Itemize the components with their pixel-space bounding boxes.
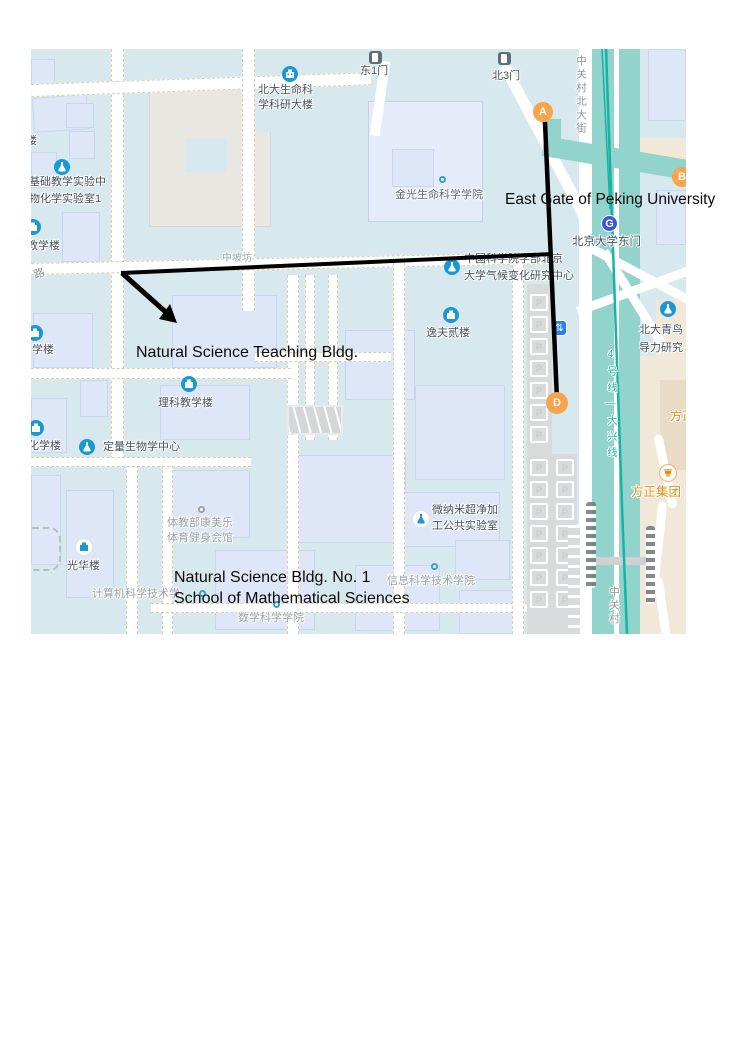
parking-cell: P [530, 547, 548, 564]
food-poi-icon[interactable] [660, 465, 676, 481]
parking-cell: P [530, 591, 548, 608]
parking-cell: P [530, 382, 548, 399]
building [66, 103, 94, 128]
parking-cell: P [530, 316, 548, 333]
poi-math: 数学科学学院 [238, 611, 304, 626]
poi-jiaoxuelou: 教学楼 [31, 239, 60, 254]
parking-cell: P [556, 481, 574, 498]
building [392, 149, 434, 187]
parking-cell: P [530, 525, 548, 542]
parking-cell: P [530, 404, 548, 421]
street-covered-label: 中坡坊 [222, 251, 252, 266]
parking-cell: P [556, 503, 574, 520]
parking-cell: P [530, 481, 548, 498]
marker-exit-a[interactable]: A [533, 102, 553, 122]
parking-ticks [568, 525, 580, 634]
building-poi-icon[interactable] [282, 66, 298, 82]
building-poi-icon[interactable] [76, 539, 92, 555]
parking-lot-hatched [287, 405, 343, 435]
poi-founder-group: 方正集团 [631, 485, 681, 500]
road [111, 49, 124, 459]
poi-lou-partial: 楼 [31, 134, 37, 149]
poi-qingniao-line1: 北大青鸟 [639, 323, 683, 338]
flask-poi-icon[interactable] [79, 439, 95, 455]
road [31, 457, 251, 467]
parking-cell: P [530, 569, 548, 586]
parking-cell: P [530, 294, 548, 311]
poi-micro-nano-line2: 工公共实验室 [432, 519, 498, 534]
poi-jinguang: 金光生命科学学院 [395, 188, 483, 203]
poi-info: 信息科学技术学院 [387, 574, 475, 589]
metro-logo-icon[interactable]: G [601, 215, 618, 232]
road [31, 368, 291, 379]
parking-cell: P [530, 426, 548, 443]
poi-founder-partial: 方正 [670, 409, 686, 424]
building [31, 59, 55, 85]
building-poi-icon[interactable] [181, 376, 197, 392]
poi-basic-lab-line1: 基础教学实验中 [31, 175, 106, 190]
poi-dot-icon[interactable] [198, 506, 205, 513]
metro-station-label: 北京大学东门 [572, 235, 641, 250]
subway-line4-label: 4号线—大兴线 [603, 349, 618, 463]
poi-yifu: 逸夫贰楼 [426, 326, 470, 341]
parking-cell: P [556, 459, 574, 476]
parking-cell: P [530, 338, 548, 355]
poi-qingniao-line2: 导力研究 [639, 341, 683, 356]
flask-poi-icon[interactable] [413, 511, 429, 527]
building [69, 131, 95, 159]
building [62, 212, 100, 262]
marker-exit-d[interactable]: D [546, 392, 568, 414]
poi-gym-line1: 体教部康美乐 [167, 516, 233, 531]
marker-exit-b[interactable]: B [672, 167, 686, 187]
screenshot-page: P P P P P P P P P P P P P P P P P P P P … [0, 0, 745, 1053]
poi-dot-icon[interactable] [431, 563, 438, 570]
gray-road-band [596, 557, 648, 565]
street-zgc-north: 中关村北大街 [573, 55, 588, 136]
poi-micro-nano-line1: 微纳米超净加 [432, 503, 498, 518]
building [160, 385, 250, 440]
road [512, 255, 524, 634]
poi-like-teaching: 理科教学楼 [158, 396, 213, 411]
poi-huaxuelou: 化学楼 [31, 439, 61, 454]
poi-gym-line2: 体育健身会馆 [167, 531, 233, 546]
poi-guanghua: 光华楼 [67, 559, 100, 574]
poi-basic-lab-line2: 物化学实验室1 [31, 192, 101, 207]
teal-road-stub [545, 119, 561, 149]
parking-cell: P [530, 503, 548, 520]
poi-cs: 计算机科学技术学 [92, 587, 180, 602]
footbridge-zebra [586, 502, 596, 588]
annotation-bldg-no1: Natural Science Bldg. No. 1 [174, 569, 371, 587]
poi-quant-bio: 定量生物学中心 [103, 440, 180, 455]
building [415, 385, 505, 480]
street-zgc-south: 中关村 [606, 586, 621, 627]
gate-door-icon[interactable] [498, 52, 511, 65]
building [648, 49, 686, 121]
building-poi-icon[interactable] [31, 219, 41, 235]
annotation-east-gate: East Gate of Peking University [505, 191, 715, 209]
annotation-math-school: School of Mathematical Sciences [174, 590, 410, 608]
road [126, 460, 138, 634]
gray-building-courtyard [185, 139, 227, 172]
annotation-teaching-bldg: Natural Science Teaching Bldg. [136, 344, 358, 362]
building [80, 380, 108, 417]
footbridge-zebra [646, 526, 655, 604]
poi-xuelou: 学楼 [32, 343, 54, 358]
metro-entrance-icon[interactable]: ⇅ [552, 320, 567, 336]
poi-life-sci-line1: 北大生命科 [258, 83, 313, 98]
parking-cell: P [530, 360, 548, 377]
road [242, 49, 255, 311]
poi-cas-line1: 中国科学院学部北京 [464, 252, 563, 267]
map-canvas[interactable]: P P P P P P P P P P P P P P P P P P P P … [31, 49, 686, 634]
flask-poi-icon[interactable] [54, 159, 70, 175]
track-outline [31, 527, 61, 571]
poi-cas-line2: 大学气候变化研究中心 [464, 269, 574, 284]
building-poi-icon[interactable] [443, 307, 459, 323]
poi-life-sci-line2: 学科研大楼 [258, 98, 313, 113]
building [298, 455, 406, 543]
gate-east1-label: 东1门 [360, 64, 388, 79]
flask-poi-icon[interactable] [444, 259, 460, 275]
teal-road [619, 49, 640, 634]
flask-poi-icon[interactable] [660, 301, 676, 317]
poi-dot-icon[interactable] [439, 176, 446, 183]
building [33, 313, 93, 368]
gate-north3-label: 北3门 [492, 69, 520, 84]
gate-door-icon[interactable] [369, 51, 382, 64]
parking-cell: P [530, 459, 548, 476]
